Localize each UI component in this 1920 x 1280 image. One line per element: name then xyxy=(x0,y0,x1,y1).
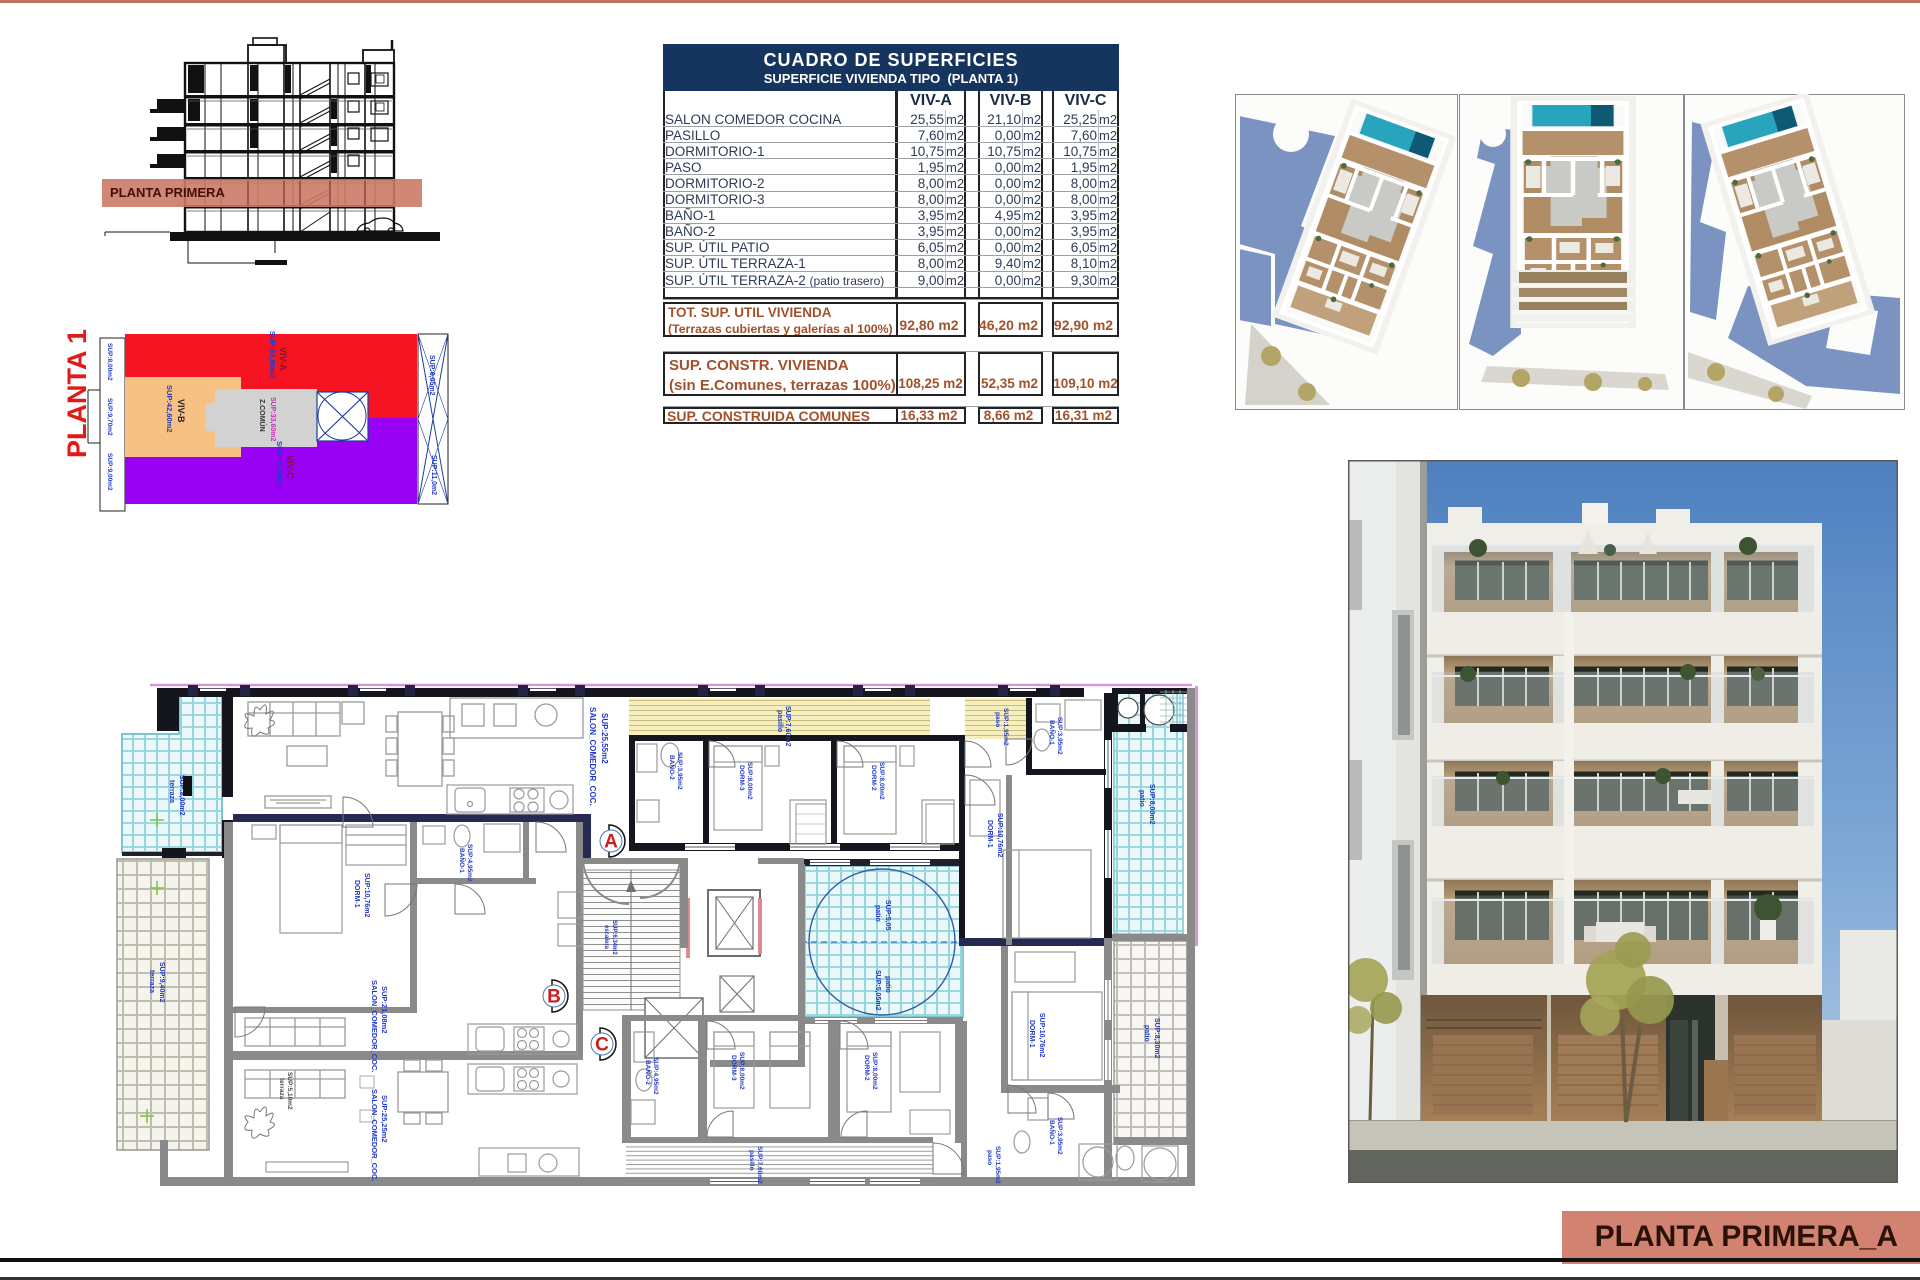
svg-text:DORM-3: DORM-3 xyxy=(730,1055,737,1081)
svg-text:SUP:8,30m2: SUP:8,30m2 xyxy=(1153,1018,1160,1059)
svg-text:SUP:10,76m2: SUP:10,76m2 xyxy=(363,873,370,917)
svg-text:patio: patio xyxy=(1138,790,1145,807)
svg-text:SUP:21,08m2: SUP:21,08m2 xyxy=(380,986,389,1034)
svg-text:pasillo: pasillo xyxy=(776,710,783,732)
svg-text:terraza: terraza xyxy=(168,780,175,803)
svg-text:SUP:25,25m2: SUP:25,25m2 xyxy=(380,1095,389,1143)
svg-text:C: C xyxy=(595,1035,609,1056)
svg-text:SUP:8,00m2: SUP:8,00m2 xyxy=(738,1052,745,1090)
svg-text:PLANTA PRIMERA: PLANTA PRIMERA xyxy=(110,185,225,200)
svg-text:A: A xyxy=(604,832,618,853)
svg-text:SUP:33,60m2: SUP:33,60m2 xyxy=(269,397,276,441)
svg-text:SUP:3,95m2: SUP:3,95m2 xyxy=(676,752,683,790)
svg-text:paso: paso xyxy=(994,712,1001,727)
svg-text:SUP:3,95m2: SUP:3,95m2 xyxy=(1056,717,1063,755)
svg-text:SUP:9,00m2: SUP:9,00m2 xyxy=(106,453,113,491)
svg-text:SUP:5,05m2: SUP:5,05m2 xyxy=(874,970,881,1011)
svg-text:SUP:4,95m2: SUP:4,95m2 xyxy=(466,844,473,882)
svg-text:DORM-2: DORM-2 xyxy=(863,1055,870,1081)
svg-text:SUP:7,60m2: SUP:7,60m2 xyxy=(756,1146,763,1184)
svg-text:VIV-C: VIV-C xyxy=(285,455,295,479)
svg-text:SUP:8,00m2: SUP:8,00m2 xyxy=(878,762,885,800)
svg-text:SALON_COMEDOR_COC.: SALON_COMEDOR_COC. xyxy=(370,1089,379,1182)
svg-text:patio: patio xyxy=(884,976,891,993)
svg-text:SUP:1,95m2: SUP:1,95m2 xyxy=(994,1146,1001,1184)
svg-text:SUP:6,34m2: SUP:6,34m2 xyxy=(611,920,617,955)
svg-text:DORM-3: DORM-3 xyxy=(738,765,745,791)
svg-text:SUP:9,40m2: SUP:9,40m2 xyxy=(158,962,165,1003)
svg-text:DORM-2: DORM-2 xyxy=(870,765,877,791)
svg-text:VIV-B: VIV-B xyxy=(176,399,186,423)
svg-text:terraza: terraza xyxy=(148,970,155,993)
svg-text:SUP:9,70m2: SUP:9,70m2 xyxy=(106,398,113,436)
svg-text:SALON_COMEDOR_COC.: SALON_COMEDOR_COC. xyxy=(370,980,379,1073)
svg-text:SUP:8,00m2: SUP:8,00m2 xyxy=(871,1052,878,1090)
svg-text:SUP:7,60m2: SUP:7,60m2 xyxy=(784,706,791,747)
svg-text:DORM-1: DORM-1 xyxy=(986,820,993,848)
svg-text:pasillo: pasillo xyxy=(748,1150,755,1171)
svg-text:patio: patio xyxy=(1143,1025,1150,1042)
svg-text:BAÑO-1: BAÑO-1 xyxy=(458,848,467,873)
svg-text:Z.COMÚN: Z.COMÚN xyxy=(258,399,267,432)
svg-text:SUP:92,80m2: SUP:92,80m2 xyxy=(268,331,277,379)
svg-text:SUP:4,95m2: SUP:4,95m2 xyxy=(652,1057,659,1095)
svg-text:BAÑO-2: BAÑO-2 xyxy=(644,1060,653,1085)
svg-text:SUP:6,05m2: SUP:6,05m2 xyxy=(428,355,435,396)
svg-text:escalera: escalera xyxy=(603,925,609,950)
svg-text:SUP:5,10m2: SUP:5,10m2 xyxy=(286,1072,293,1110)
svg-text:SUP:10,76m2: SUP:10,76m2 xyxy=(996,813,1003,857)
svg-text:BAÑO-2: BAÑO-2 xyxy=(668,755,677,780)
svg-text:SUP:8,00m2: SUP:8,00m2 xyxy=(1148,784,1155,825)
svg-text:patio: patio xyxy=(874,905,881,922)
svg-text:DORM-1: DORM-1 xyxy=(353,880,360,908)
svg-text:B: B xyxy=(547,987,561,1008)
svg-text:SUP:25,55m2: SUP:25,55m2 xyxy=(600,713,609,764)
svg-text:BAÑO-1: BAÑO-1 xyxy=(1048,1120,1057,1145)
svg-text:SUP:10,76m2: SUP:10,76m2 xyxy=(1038,1013,1045,1057)
svg-text:BAÑO-1: BAÑO-1 xyxy=(1048,720,1057,745)
svg-text:SUP:8,00m2: SUP:8,00m2 xyxy=(106,343,113,381)
svg-text:VIV-A: VIV-A xyxy=(278,347,288,371)
svg-text:paso: paso xyxy=(986,1150,993,1165)
svg-text:SUP:5,05: SUP:5,05 xyxy=(884,900,891,930)
svg-text:SUP:11,0m2: SUP:11,0m2 xyxy=(430,455,437,495)
svg-text:terraza: terraza xyxy=(278,1078,285,1100)
svg-text:SUP:92,90m2: SUP:92,90m2 xyxy=(275,441,284,489)
svg-text:SALON_COMEDOR_COC.: SALON_COMEDOR_COC. xyxy=(588,707,597,806)
svg-text:SUP:8,00m2: SUP:8,00m2 xyxy=(746,762,753,800)
svg-text:SUP:3,95m2: SUP:3,95m2 xyxy=(1056,1117,1063,1155)
svg-text:DORM-1: DORM-1 xyxy=(1028,1020,1035,1048)
svg-text:SUP:1,95m2: SUP:1,95m2 xyxy=(1002,708,1009,746)
svg-text:SUP:42,60m2: SUP:42,60m2 xyxy=(165,385,174,433)
